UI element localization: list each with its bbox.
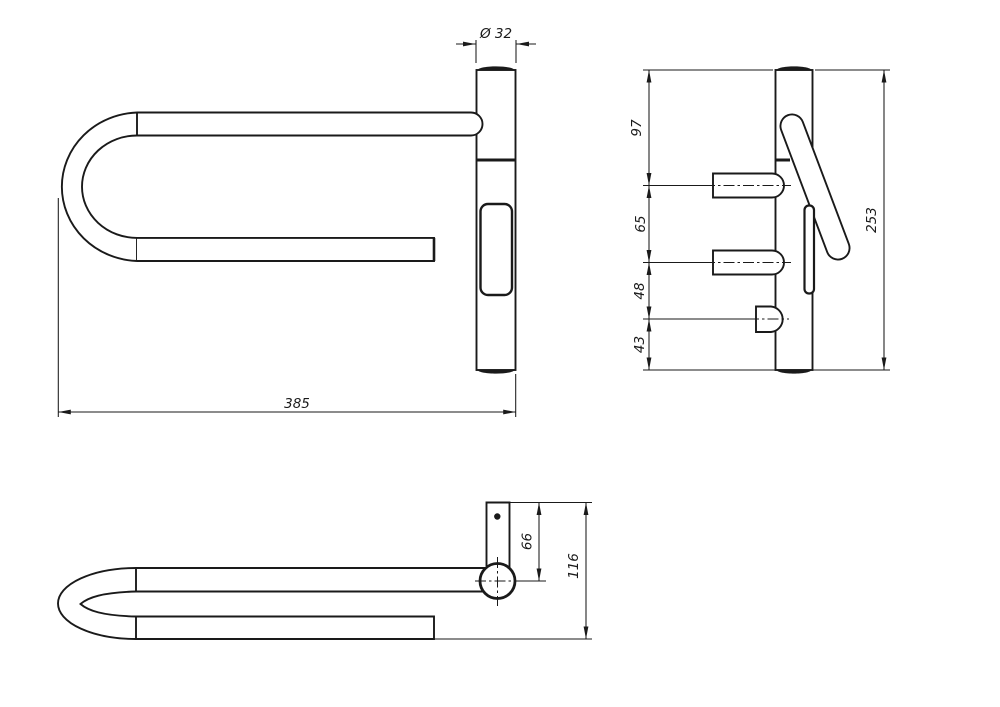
side-view: 97 65 48 43 253 — [629, 66, 890, 373]
front-view: Ø 32 385 — [58, 26, 536, 417]
front-diameter-dimension: Ø 32 — [456, 26, 536, 63]
front-slot — [481, 204, 513, 295]
front-u-bend-inner — [82, 136, 137, 238]
side-post-bottom-cap — [777, 370, 812, 374]
plan-screw-hole — [494, 513, 500, 519]
drawing-sheet: Ø 32 385 — [0, 0, 1000, 707]
plan-offset-dimension: 66 — [520, 503, 547, 582]
dim-66-label: 66 — [520, 533, 536, 550]
front-upper-arm — [137, 113, 483, 136]
side-slot — [805, 206, 815, 294]
plan-u-bar — [58, 568, 497, 639]
front-post-top-cap — [478, 66, 515, 70]
dim-width-label: 385 — [284, 396, 310, 412]
front-lower-arm — [137, 238, 434, 261]
dim-43-label: 43 — [632, 336, 648, 353]
technical-drawing: Ø 32 385 — [0, 0, 1000, 707]
side-post-top-cap — [777, 66, 812, 70]
front-post-bottom-cap — [478, 370, 515, 374]
dim-97-label: 97 — [629, 119, 645, 137]
dim-253-label: 253 — [864, 207, 880, 233]
dim-116-label: 116 — [566, 553, 582, 579]
front-width-dimension: 385 — [58, 198, 515, 417]
dim-65-label: 65 — [633, 215, 649, 232]
front-u-bend-outer — [62, 113, 137, 262]
plan-view: 66 116 — [58, 503, 592, 640]
dim-diameter-label: Ø 32 — [479, 26, 512, 42]
dim-48-label: 48 — [632, 282, 648, 299]
